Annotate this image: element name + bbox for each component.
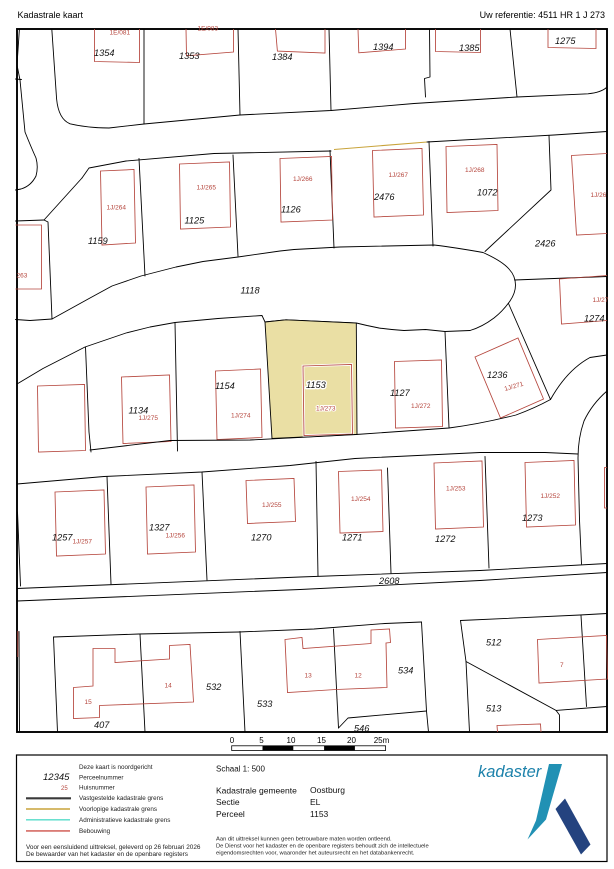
- svg-text:1159: 1159: [88, 236, 108, 246]
- svg-text:1J/256: 1J/256: [166, 533, 186, 540]
- svg-text:Schaal 1: 500: Schaal 1: 500: [216, 765, 265, 774]
- svg-text:De bewaarder van het kadaster: De bewaarder van het kadaster en de open…: [26, 851, 188, 858]
- svg-text:1153: 1153: [310, 809, 329, 819]
- svg-text:1J/275: 1J/275: [139, 415, 159, 422]
- svg-text:Perceelnummer: Perceelnummer: [79, 775, 123, 782]
- svg-text:1327: 1327: [149, 523, 170, 533]
- svg-text:534: 534: [398, 666, 413, 676]
- svg-text:12: 12: [355, 673, 363, 680]
- svg-text:1J/268: 1J/268: [465, 167, 485, 174]
- svg-text:1J/273: 1J/273: [316, 406, 336, 413]
- svg-text:1J/274: 1J/274: [231, 413, 251, 420]
- svg-text:Oostburg: Oostburg: [310, 785, 345, 795]
- svg-text:1272: 1272: [435, 534, 455, 544]
- svg-text:1J/267: 1J/267: [389, 172, 409, 179]
- svg-text:1353: 1353: [179, 51, 200, 61]
- svg-text:De Dienst voor het kadaster en: De Dienst voor het kadaster en de openba…: [216, 844, 429, 850]
- svg-text:1126: 1126: [281, 205, 302, 215]
- svg-text:Uw referentie: 4511 HR 1 J 273: Uw referentie: 4511 HR 1 J 273: [480, 10, 605, 20]
- svg-text:25m: 25m: [374, 736, 390, 745]
- svg-text:1385: 1385: [459, 43, 480, 53]
- svg-text:533: 533: [257, 699, 273, 709]
- svg-text:13: 13: [305, 673, 313, 680]
- svg-text:1E/083: 1E/083: [198, 26, 219, 33]
- svg-text:512: 512: [486, 638, 501, 648]
- svg-text:Administratieve kadastrale gre: Administratieve kadastrale grens: [79, 817, 170, 824]
- svg-text:0: 0: [230, 736, 235, 745]
- svg-text:Kadastrale kaart: Kadastrale kaart: [18, 10, 84, 20]
- svg-text:14: 14: [165, 683, 173, 690]
- svg-text:1J/272: 1J/272: [411, 403, 431, 410]
- svg-text:1275: 1275: [555, 36, 576, 46]
- svg-text:Sectie: Sectie: [216, 797, 240, 807]
- svg-text:Bebouwing: Bebouwing: [79, 828, 111, 835]
- svg-text:Voor een eensluidend uittrekse: Voor een eensluidend uittreksel, gelever…: [26, 844, 201, 851]
- svg-text:1J/254: 1J/254: [351, 496, 371, 503]
- svg-text:1125: 1125: [185, 216, 206, 226]
- svg-text:1127: 1127: [390, 388, 411, 398]
- svg-text:15: 15: [85, 699, 93, 706]
- svg-text:1J/264: 1J/264: [107, 205, 127, 212]
- svg-text:Voorlopige kadastrale grens: Voorlopige kadastrale grens: [79, 806, 157, 813]
- svg-text:1J/265: 1J/265: [197, 185, 217, 192]
- svg-text:1274: 1274: [584, 314, 604, 324]
- svg-text:1J/27: 1J/27: [593, 297, 609, 304]
- svg-text:1384: 1384: [272, 52, 292, 62]
- svg-text:Vastgestelde kadastrale grens: Vastgestelde kadastrale grens: [79, 795, 163, 802]
- svg-text:1J/266: 1J/266: [293, 176, 313, 183]
- svg-text:532: 532: [206, 682, 221, 692]
- svg-text:EL: EL: [310, 797, 321, 807]
- svg-text:1118: 1118: [241, 286, 261, 296]
- svg-text:1154: 1154: [215, 381, 235, 391]
- svg-text:Huisnummer: Huisnummer: [79, 785, 115, 792]
- svg-text:kadaster: kadaster: [478, 763, 543, 781]
- svg-text:1270: 1270: [251, 533, 272, 543]
- svg-text:1J/257: 1J/257: [73, 539, 93, 546]
- svg-text:546: 546: [354, 724, 370, 734]
- svg-text:1271: 1271: [342, 533, 362, 543]
- svg-text:15: 15: [317, 736, 326, 745]
- svg-text:10: 10: [287, 736, 296, 745]
- svg-text:Kadastrale gemeente: Kadastrale gemeente: [216, 786, 297, 796]
- svg-text:20: 20: [347, 736, 356, 745]
- svg-text:7: 7: [560, 662, 564, 669]
- svg-text:Perceel: Perceel: [216, 809, 245, 819]
- svg-text:263: 263: [17, 273, 28, 280]
- svg-text:2426: 2426: [534, 239, 556, 249]
- svg-text:25: 25: [61, 786, 68, 792]
- svg-text:1354: 1354: [94, 48, 114, 58]
- svg-text:1J/252: 1J/252: [541, 493, 561, 500]
- svg-text:1153: 1153: [306, 380, 327, 390]
- svg-text:1J/255: 1J/255: [262, 502, 282, 509]
- svg-text:1134: 1134: [129, 406, 149, 416]
- svg-text:12345: 12345: [43, 772, 70, 783]
- svg-text:Deze kaart is noordgericht: Deze kaart is noordgericht: [79, 764, 153, 771]
- svg-text:1072: 1072: [477, 188, 497, 198]
- svg-text:1E/081: 1E/081: [110, 30, 131, 37]
- svg-text:407: 407: [94, 720, 110, 730]
- svg-text:2476: 2476: [373, 192, 395, 202]
- svg-text:Aan dit uittreksel kunnen geen: Aan dit uittreksel kunnen geen betrouwba…: [216, 837, 392, 843]
- svg-text:1236: 1236: [487, 370, 508, 380]
- svg-text:eigendomsrechten voor, waarond: eigendomsrechten voor, waaronder het aut…: [216, 851, 415, 857]
- svg-text:5: 5: [259, 736, 264, 745]
- svg-text:1394: 1394: [373, 42, 393, 52]
- svg-text:1J/253: 1J/253: [446, 486, 466, 493]
- svg-text:1257: 1257: [52, 533, 73, 543]
- svg-text:1J/26: 1J/26: [591, 192, 607, 199]
- svg-text:2608: 2608: [378, 576, 400, 586]
- svg-text:1273: 1273: [522, 513, 543, 523]
- svg-text:513: 513: [486, 704, 502, 714]
